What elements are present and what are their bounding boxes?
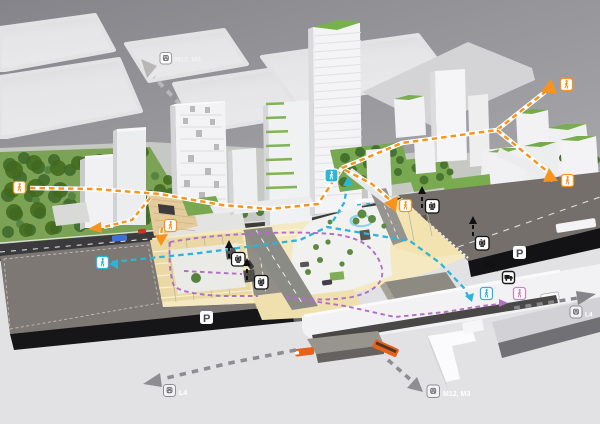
svg-text:L4: L4 (585, 312, 593, 319)
svg-text:M12, M3: M12, M3 (443, 391, 470, 398)
svg-text:L4: L4 (179, 390, 187, 397)
svg-text:P: P (516, 248, 523, 260)
svg-text:M12, M3: M12, M3 (175, 57, 202, 64)
svg-text:P: P (203, 313, 210, 325)
